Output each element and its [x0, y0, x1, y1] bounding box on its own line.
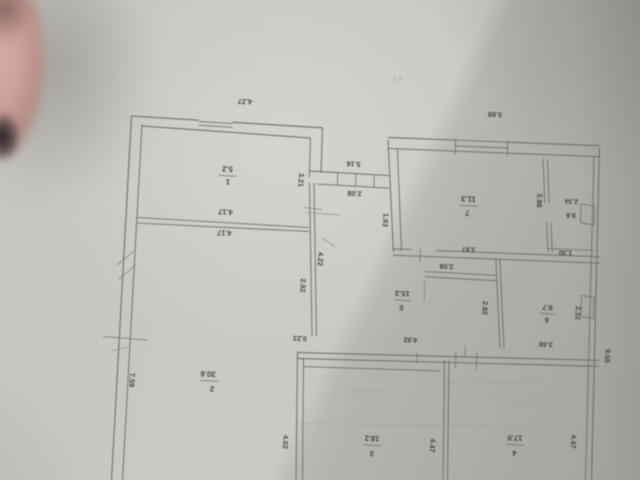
svg-text:9.55: 9.55	[603, 349, 613, 363]
svg-text:4.27: 4.27	[237, 97, 252, 107]
svg-text:4: 4	[511, 448, 516, 457]
svg-text:3: 3	[370, 449, 375, 458]
svg-text:1: 1	[225, 177, 230, 186]
svg-text:2.92: 2.92	[298, 278, 308, 292]
svg-text:0.23: 0.23	[293, 334, 307, 342]
svg-text:2.32: 2.32	[573, 306, 581, 320]
svg-text:4.47: 4.47	[428, 438, 438, 452]
svg-text:2: 2	[209, 384, 214, 393]
svg-text:8.7: 8.7	[542, 303, 553, 313]
svg-text:2.08: 2.08	[347, 189, 361, 199]
svg-text:2.98: 2.98	[535, 193, 545, 207]
svg-text:2.34: 2.34	[565, 197, 579, 205]
svg-text:4.17: 4.17	[217, 228, 232, 238]
svg-text:5.89: 5.89	[488, 110, 502, 120]
svg-text:4 0: 4 0	[393, 74, 403, 82]
svg-text:2.92: 2.92	[480, 301, 490, 315]
svg-text:5.2: 5.2	[221, 164, 233, 174]
svg-text:3.48: 3.48	[539, 340, 553, 348]
svg-text:6: 6	[544, 315, 549, 324]
svg-text:18.2: 18.2	[364, 434, 379, 444]
svg-text:30.6: 30.6	[200, 369, 216, 379]
svg-text:4.92: 4.92	[403, 335, 417, 343]
svg-text:11.3: 11.3	[460, 194, 476, 204]
svg-text:15.3: 15.3	[395, 289, 410, 299]
svg-text:3.87: 3.87	[461, 245, 475, 253]
svg-text:5: 5	[398, 303, 403, 312]
svg-text:2.08: 2.08	[439, 262, 453, 270]
svg-text:5.16: 5.16	[346, 159, 360, 169]
svg-text:4.17: 4.17	[218, 207, 233, 217]
svg-text:9.6: 9.6	[566, 211, 576, 219]
svg-text:1.93: 1.93	[381, 213, 391, 227]
svg-text:4.47: 4.47	[569, 434, 579, 448]
svg-text:4.22: 4.22	[316, 252, 326, 266]
svg-text:..: ..	[370, 83, 374, 90]
svg-text:3.21: 3.21	[296, 173, 306, 187]
svg-text:17.9: 17.9	[507, 433, 522, 443]
svg-text:7: 7	[465, 208, 470, 217]
svg-text:4.02: 4.02	[281, 435, 291, 449]
svg-text:1.30: 1.30	[559, 248, 573, 256]
svg-text:7.59: 7.59	[127, 373, 137, 388]
